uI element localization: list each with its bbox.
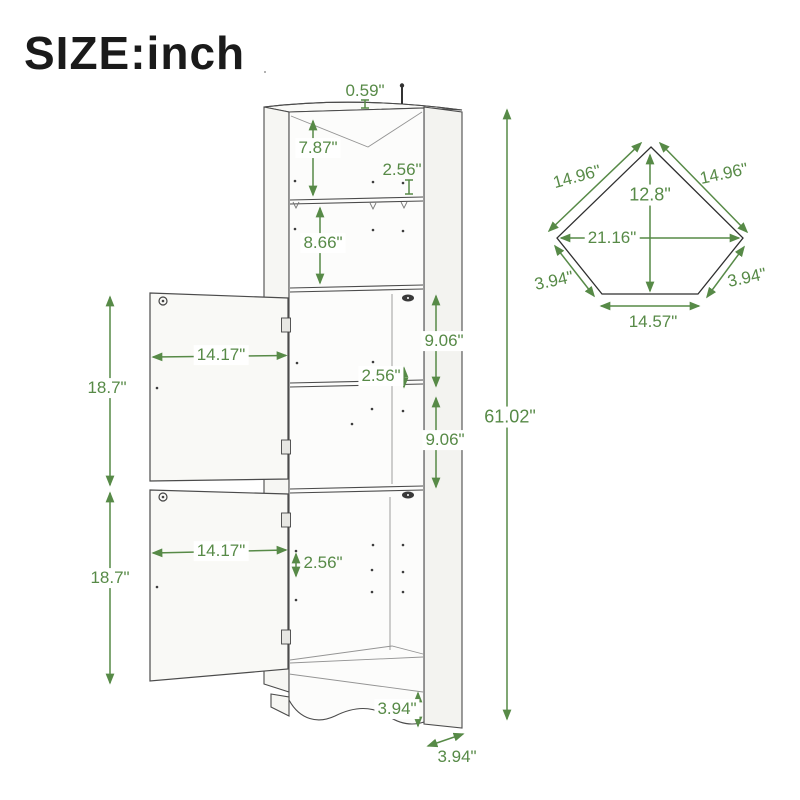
dim-upper-door-height: 18.7": [84, 378, 129, 398]
size-diagram: SIZE:inch 0.59" 7.87" 2.56" 8.66" 14.17"…: [0, 0, 800, 800]
cabinet-front-face: [289, 108, 424, 724]
dim-middle-shelf-spacing: 2.56": [358, 366, 403, 386]
dim-upper-middle-compartment-height: 9.06": [421, 331, 466, 351]
upper-door: [150, 293, 291, 481]
dim-base-height: 3.94": [374, 699, 419, 719]
dim-overall-width: 21.16": [585, 228, 640, 248]
dim-depth-front-to-back: 12.8": [626, 185, 673, 206]
top-pin: [400, 83, 404, 104]
arrow-side-depth: [428, 734, 463, 746]
dim-lower-middle-compartment-height: 9.06": [422, 430, 467, 450]
dim-top-compartment-height: 7.87": [295, 138, 340, 158]
hinge: [282, 630, 291, 644]
dim-side-panel-depth: 3.94": [437, 748, 476, 766]
hinge: [282, 440, 291, 454]
dim-lower-shelf-spacing: 2.56": [303, 554, 342, 572]
dim-overall-height: 61.02": [481, 407, 538, 428]
dim-top-shelf-spacing: 2.56": [382, 161, 421, 179]
left-foot: [271, 694, 289, 716]
dim-front-edge-width: 14.57": [629, 313, 678, 331]
dim-top-panel-thickness: 0.59": [345, 82, 384, 100]
lower-door: [150, 490, 291, 681]
speck: [264, 71, 266, 73]
dim-upper-door-width: 14.17": [194, 345, 249, 365]
dim-lower-door-height: 18.7": [87, 568, 132, 588]
cabinet-right-panel: [424, 107, 462, 728]
cabinet-line-art: [0, 0, 800, 800]
dim-lower-door-width: 14.17": [194, 541, 249, 561]
dim-second-compartment-height: 8.66": [300, 233, 345, 253]
page-title: SIZE:inch: [24, 26, 245, 80]
hinge: [282, 318, 291, 332]
hinge: [282, 513, 291, 527]
